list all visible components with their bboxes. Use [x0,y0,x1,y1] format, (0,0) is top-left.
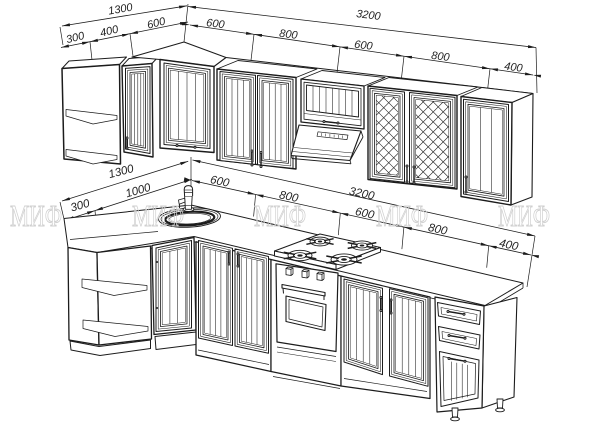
svg-text:МИФ: МИФ [376,198,428,233]
svg-text:МИФ: МИФ [10,198,62,233]
svg-text:МИФ: МИФ [498,198,550,233]
svg-text:400: 400 [504,61,525,75]
svg-text:800: 800 [431,50,452,64]
svg-text:600: 600 [354,39,375,53]
svg-text:600: 600 [206,17,227,31]
svg-text:МИФ: МИФ [132,198,184,233]
svg-text:МИФ: МИФ [254,198,306,233]
svg-text:800: 800 [279,28,300,42]
